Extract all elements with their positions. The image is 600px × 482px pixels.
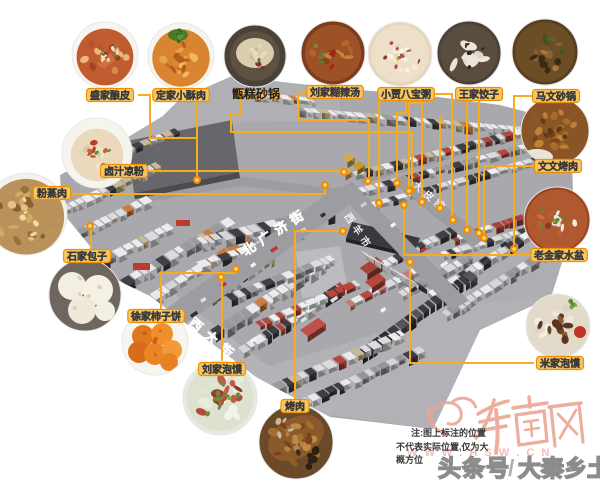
svg-text:王家饺子: 王家饺子 — [459, 88, 499, 101]
svg-text:米家泡馍: 米家泡馍 — [540, 357, 580, 370]
svg-text:定家小酥肉: 定家小酥肉 — [156, 89, 206, 102]
svg-text:卤汁凉粉: 卤汁凉粉 — [104, 165, 144, 178]
svg-text:大秦乡土: 大秦乡土 — [518, 455, 600, 481]
svg-text:马文砂锅: 马文砂锅 — [536, 90, 576, 103]
svg-text:徐家柿子饼: 徐家柿子饼 — [130, 310, 181, 323]
svg-text:盛家酿皮: 盛家酿皮 — [90, 89, 130, 102]
svg-text:不代表实际位置,仅为大: 不代表实际位置,仅为大 — [396, 441, 489, 452]
svg-text:石家包子: 石家包子 — [66, 250, 107, 263]
svg-text:小贾八宝粥: 小贾八宝粥 — [380, 88, 431, 101]
svg-text:粉蒸肉: 粉蒸肉 — [37, 187, 67, 200]
svg-text:概方位: 概方位 — [396, 454, 423, 465]
svg-text:文文烤肉: 文文烤肉 — [538, 160, 578, 173]
svg-text:甑糕砂锅: 甑糕砂锅 — [232, 86, 280, 101]
svg-text:/: / — [508, 455, 515, 481]
svg-text:刘家泡馍: 刘家泡馍 — [202, 363, 242, 376]
svg-text:注:图上标注的位置: 注:图上标注的位置 — [411, 427, 486, 438]
svg-text:老金家水盆: 老金家水盆 — [533, 249, 585, 262]
svg-text:烤肉: 烤肉 — [285, 400, 305, 413]
svg-text:刘家糊辣汤: 刘家糊辣汤 — [310, 86, 360, 99]
svg-text:头条号: 头条号 — [438, 455, 510, 481]
